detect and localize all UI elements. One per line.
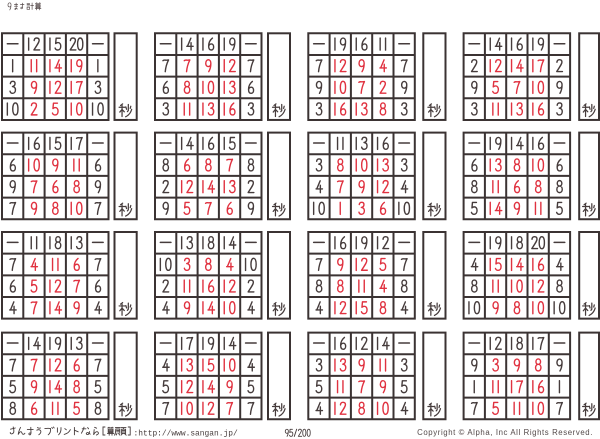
svg-text:Copyright © Alpha, Inc All Rig: Copyright © Alpha, Inc All Rights Reserv…	[417, 428, 593, 437]
svg-text::http://www.sangan.jp/: :http://www.sangan.jp/	[134, 429, 238, 438]
